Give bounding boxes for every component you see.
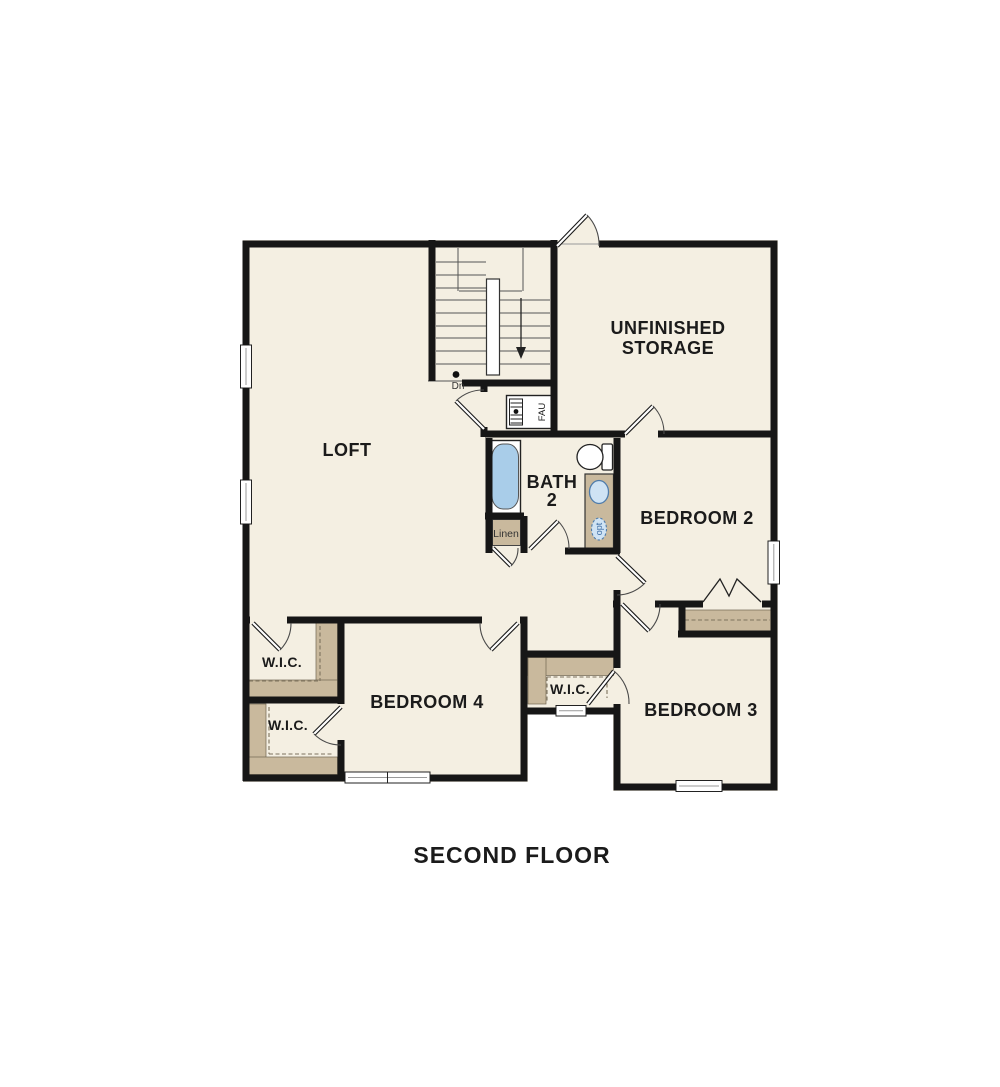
room-label-bath-line1: BATH bbox=[527, 472, 578, 492]
fau-unit-icon bbox=[507, 396, 556, 429]
toilet-icon bbox=[577, 444, 613, 470]
stair-rail bbox=[487, 279, 500, 375]
label-fau: FAU bbox=[537, 403, 548, 422]
room-label-bedroom2: BEDROOM 2 bbox=[640, 508, 754, 528]
label-opt: opt bbox=[594, 522, 604, 535]
plan-title: SECOND FLOOR bbox=[413, 842, 610, 868]
room-label-storage-line2: STORAGE bbox=[622, 338, 714, 358]
wic-loft-shelf-bottom bbox=[246, 680, 338, 697]
room-label-loft: LOFT bbox=[323, 440, 372, 460]
bathtub bbox=[492, 444, 519, 509]
room-label-bath-line2: 2 bbox=[547, 490, 558, 510]
room-label-wic-bedroom3: W.I.C. bbox=[550, 681, 590, 697]
wic-bedroom3-shelf-left bbox=[528, 658, 546, 705]
room-label-bedroom3: BEDROOM 3 bbox=[644, 700, 758, 720]
wic-bedroom4-shelf-bottom bbox=[246, 757, 338, 775]
floor-plan-page: UNFINISHED STORAGE LOFT BATH 2 BEDROOM 2… bbox=[0, 0, 1000, 1087]
stair-start-dot bbox=[453, 371, 460, 378]
room-label-wic-bedroom4: W.I.C. bbox=[268, 717, 308, 733]
sink-icon bbox=[590, 481, 609, 504]
room-label-storage-line1: UNFINISHED bbox=[610, 318, 725, 338]
label-linen: Linen bbox=[493, 528, 519, 540]
floor-plan-drawing: UNFINISHED STORAGE LOFT BATH 2 BEDROOM 2… bbox=[0, 0, 1000, 1087]
label-stair-dn: Dn bbox=[452, 381, 465, 392]
room-label-wic-loft: W.I.C. bbox=[262, 654, 302, 670]
room-label-bedroom4: BEDROOM 4 bbox=[370, 692, 484, 712]
